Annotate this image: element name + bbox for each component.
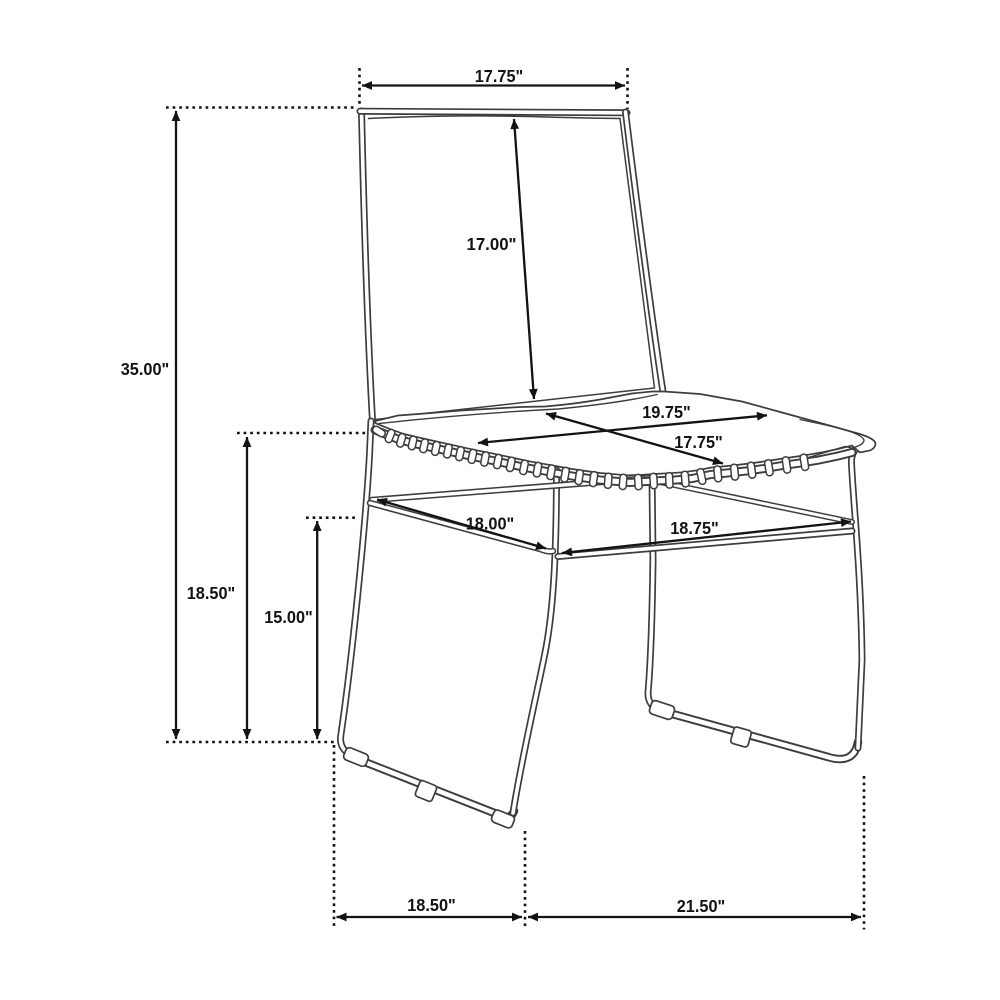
svg-text:21.50": 21.50" bbox=[677, 896, 726, 916]
svg-text:18.75": 18.75" bbox=[670, 518, 719, 538]
svg-text:17.00": 17.00" bbox=[467, 234, 517, 254]
svg-text:18.00": 18.00" bbox=[466, 514, 515, 534]
svg-text:19.75": 19.75" bbox=[642, 402, 691, 422]
svg-text:18.50": 18.50" bbox=[187, 583, 236, 603]
svg-text:18.50": 18.50" bbox=[407, 895, 456, 915]
svg-text:17.75": 17.75" bbox=[475, 66, 524, 86]
svg-text:35.00": 35.00" bbox=[121, 359, 170, 379]
svg-text:17.75": 17.75" bbox=[674, 432, 723, 452]
svg-text:15.00": 15.00" bbox=[264, 607, 313, 627]
